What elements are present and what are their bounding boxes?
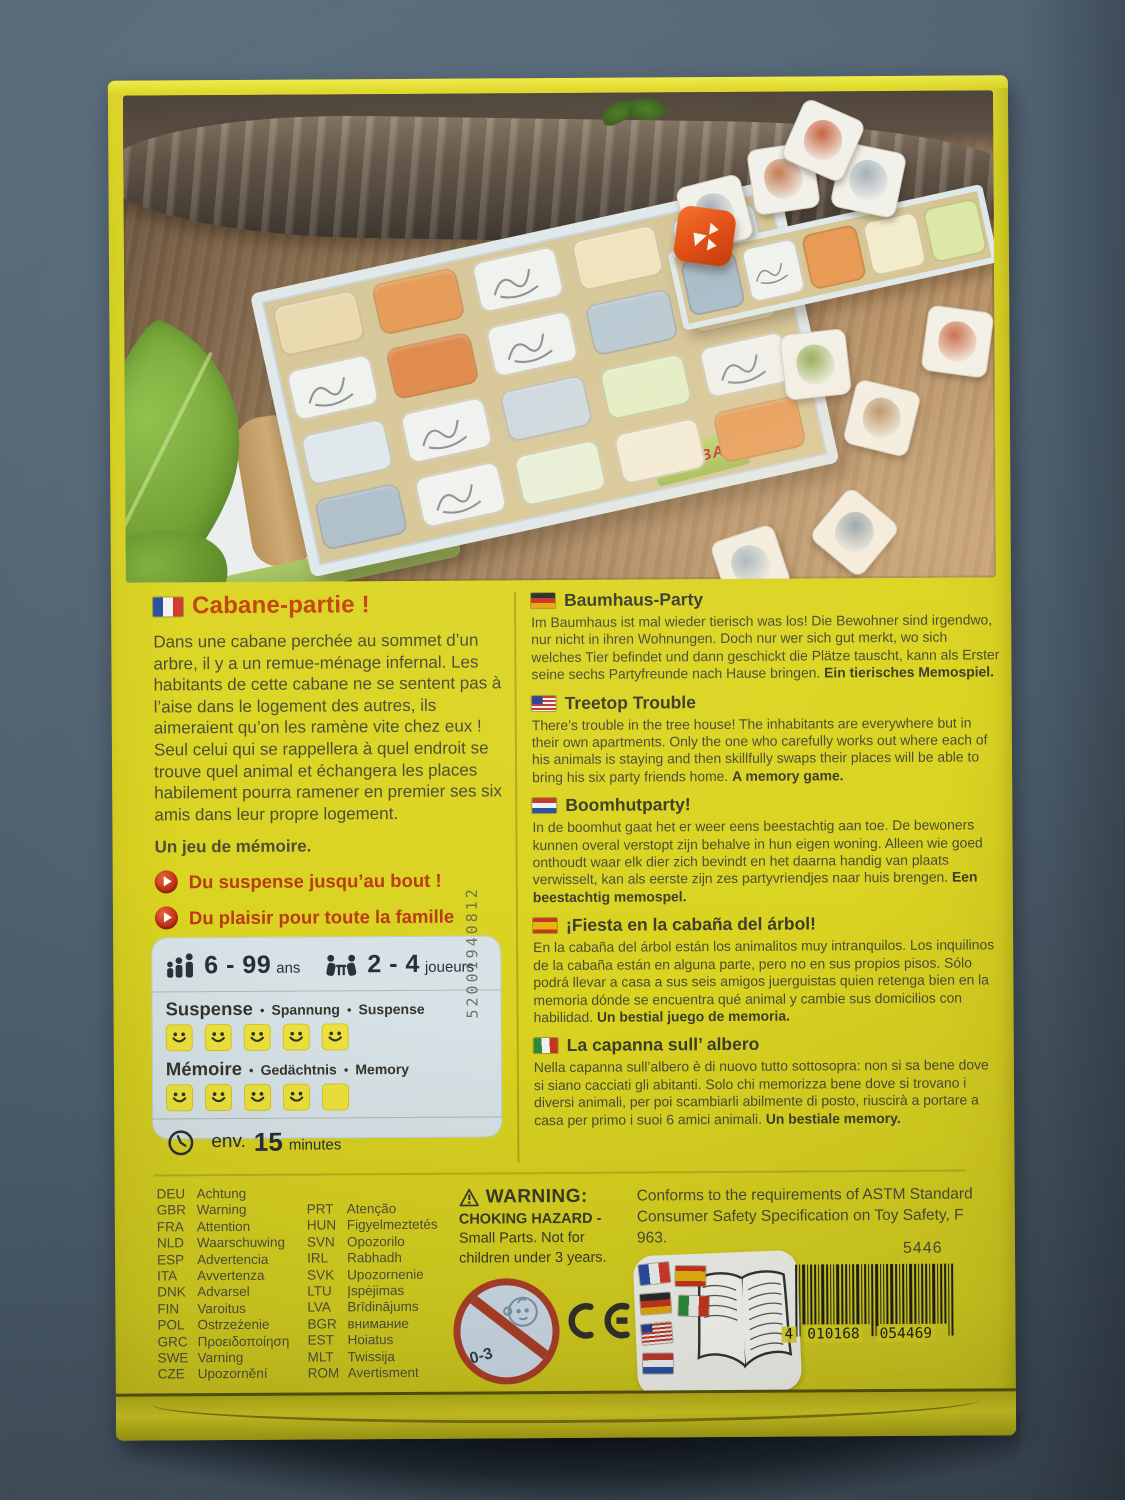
- bullet-row: Du plaisir pour toute la famille: [155, 905, 503, 930]
- section-body: En la cabaña del árbol están los animali…: [533, 937, 1002, 1027]
- section-de: Baumhaus-PartyIm Baumhaus ist mal wieder…: [531, 587, 1000, 683]
- barcode-bar: [948, 1264, 949, 1336]
- warning-word: Attention: [197, 1219, 250, 1234]
- section-body-text: Nella capanna sull’albero è di nuovo tut…: [534, 1057, 989, 1128]
- multilingual-booklet-sticker: [633, 1250, 803, 1397]
- rating-label: Suspense•Spannung•Suspense: [165, 996, 487, 1020]
- age-0-3-prohibition-icon: 0-3: [449, 1274, 564, 1389]
- rating-label-2: Memory: [355, 1061, 409, 1077]
- duration-value: 15: [254, 1126, 283, 1157]
- warning-word: внимание: [347, 1316, 409, 1331]
- warning-word: Varning: [198, 1350, 244, 1365]
- choking-hazard-line: CHOKING HAZARD -: [459, 1211, 639, 1228]
- barcode-bar: [799, 1265, 800, 1337]
- france-flag-icon: [153, 597, 183, 616]
- nl-flag-icon: [532, 798, 556, 813]
- legal-area-divider: [155, 1170, 967, 1176]
- usa-flag-icon: [641, 1322, 673, 1345]
- section-title-row: ¡Fiesta en la cabaña del árbol!: [533, 913, 1001, 937]
- barcode-bar: [833, 1264, 834, 1324]
- barcode-bar: [849, 1264, 850, 1324]
- warning-word: Figyelmeztetés: [347, 1217, 438, 1233]
- section-body: Nella capanna sull’albero è di nuovo tut…: [534, 1057, 1002, 1129]
- barcode-bar: [861, 1264, 862, 1324]
- rating-label-2: Suspense: [358, 1001, 424, 1017]
- language-code: LVA: [307, 1300, 347, 1317]
- barcode-bar: [871, 1264, 873, 1336]
- barcode-bar: [821, 1264, 824, 1324]
- animal-illustration: [798, 114, 849, 166]
- smiley-icon: [166, 1084, 193, 1111]
- section-body: Im Baumhaus ist mal wieder tierisch was …: [531, 611, 999, 683]
- board-tile: [313, 482, 408, 551]
- warning-language-row: NLDWaarschuwing: [157, 1235, 289, 1252]
- barcode-bar: [814, 1264, 816, 1324]
- choking-hazard-warning: WARNING: CHOKING HAZARD - Small Parts. N…: [459, 1186, 639, 1268]
- barcode-bar: [886, 1264, 888, 1324]
- section-body: In de boomhut gaat het er weer eens bees…: [532, 817, 1001, 907]
- board-tile: [299, 418, 394, 487]
- language-code: SVN: [307, 1234, 347, 1251]
- language-code: NLD: [157, 1235, 197, 1252]
- warning-word: Upozornění: [198, 1366, 268, 1381]
- us-flag-icon: [532, 696, 556, 711]
- smiley-icon: [283, 1084, 310, 1111]
- it-flag-icon: [534, 1038, 558, 1053]
- language-code: MLT: [308, 1349, 348, 1366]
- barcode-bar: [807, 1265, 808, 1325]
- warning-word: Brīdinājums: [347, 1299, 418, 1314]
- warning-word: Προειδοποίηση: [198, 1333, 290, 1349]
- label-separator-dot: •: [260, 1003, 265, 1018]
- section-es: ¡Fiesta en la cabaña del árbol!En la cab…: [533, 913, 1002, 1027]
- warning-word: Įspėjimas: [347, 1283, 404, 1298]
- barcode-bar: [826, 1264, 828, 1324]
- french-body: Dans une cabane perchée au sommet d’un a…: [153, 629, 502, 825]
- strip-tile: [922, 197, 989, 264]
- warning-language-row: LVABrīdinājums: [307, 1299, 438, 1316]
- duration-row: env. 15 minutes: [152, 1116, 502, 1165]
- barcode-bar: [951, 1264, 953, 1336]
- french-memory-note: Un jeu de mémoire.: [154, 836, 502, 858]
- barcode-bar: [914, 1264, 916, 1324]
- language-code: ROM: [308, 1365, 348, 1382]
- language-code: GBR: [157, 1203, 197, 1220]
- barcode-bar: [836, 1264, 839, 1324]
- barcode-bar: [883, 1264, 884, 1324]
- warning-language-row: HUNFigyelmeztetés: [307, 1217, 438, 1234]
- french-title-row: Cabane-partie !: [153, 590, 501, 620]
- bullet-list: Du suspense jusqu’au bout !Du plaisir po…: [155, 869, 503, 930]
- barcode-bar: [902, 1264, 904, 1324]
- warning-word: Achtung: [197, 1186, 247, 1201]
- language-code: ITA: [157, 1268, 197, 1285]
- section-title: Boomhutparty!: [565, 794, 691, 816]
- section-title: ¡Fiesta en la cabaña del árbol!: [566, 914, 816, 937]
- game-box-back: HABA Cabane-partie ! Dans une cabane per…: [108, 75, 1016, 1440]
- warning-language-row: DEUAchtung: [157, 1186, 289, 1203]
- play-bullet-icon: [155, 907, 178, 930]
- section-title: Baumhaus-Party: [564, 589, 703, 611]
- section-title: La capanna sull’ albero: [567, 1034, 760, 1056]
- game-die: [672, 205, 737, 268]
- french-title: Cabane-partie !: [192, 591, 370, 620]
- barcode-bar: [856, 1264, 859, 1324]
- astm-statement: Conforms to the requirements of ASTM Sta…: [637, 1183, 997, 1248]
- warning-language-row: IRLRabhadh: [307, 1250, 438, 1267]
- warning-word: Atenção: [347, 1201, 397, 1216]
- barcode-bar: [841, 1264, 843, 1324]
- warning-language-row: ESPAdvertencia: [157, 1251, 289, 1268]
- duration-prefix: env.: [211, 1131, 246, 1153]
- section-title: Treetop Trouble: [565, 692, 696, 714]
- small-parts-line: Small Parts. Not for: [459, 1229, 639, 1248]
- warning-language-row: PRTAtenção: [307, 1201, 438, 1218]
- players-range: 2 - 4: [367, 949, 420, 978]
- warning-word: Twissija: [348, 1349, 395, 1364]
- french-column: Cabane-partie ! Dans une cabane perchée …: [153, 590, 503, 942]
- warning-language-row: ITAAvvertenza: [157, 1268, 289, 1285]
- es-flag-icon: [533, 918, 557, 933]
- warning-language-row: GBRWarning: [157, 1202, 289, 1219]
- warning-language-row: DNKAdvarsel: [157, 1284, 289, 1301]
- smiley-icon: [166, 1024, 193, 1051]
- age-range: 6 - 99: [204, 950, 271, 979]
- rating-tiles: [166, 1082, 488, 1111]
- background-shade: [1025, 0, 1125, 1500]
- section-us: Treetop TroubleThere’s trouble in the tr…: [532, 690, 1001, 786]
- age-0-3-label: 0-3: [468, 1345, 495, 1368]
- spain-flag-icon: [675, 1266, 705, 1286]
- barcode-bar: [918, 1264, 919, 1324]
- players-icon: [322, 951, 360, 977]
- warning-word: Hoiatus: [348, 1332, 394, 1347]
- smiley-icon: [322, 1023, 349, 1050]
- barcode-bar: [944, 1264, 946, 1324]
- warning-language-row: FINVaroitus: [157, 1301, 289, 1318]
- clock-icon: [166, 1128, 195, 1157]
- warning-language-row: FRAAttention: [157, 1218, 289, 1235]
- barcode-bar: [921, 1264, 923, 1324]
- language-sections: Baumhaus-PartyIm Baumhaus ist mal wieder…: [531, 587, 1002, 1138]
- barcode-bar: [818, 1264, 819, 1324]
- warning-word: Advertencia: [197, 1251, 268, 1266]
- barcode-digits-mid: 010168: [804, 1326, 862, 1342]
- age-players-row: 6 - 99 ans 2 - 4 joueurs: [151, 935, 501, 992]
- photo-of-game-box: HABA Cabane-partie ! Dans une cabane per…: [0, 0, 1125, 1500]
- barcode-bar: [880, 1264, 881, 1324]
- ratings: Suspense•Spannung•SuspenseMémoire•Gedäch…: [151, 990, 502, 1111]
- smiley-icon: [244, 1084, 271, 1111]
- barcode-bar: [929, 1264, 930, 1324]
- smiley-icon: [283, 1024, 310, 1051]
- warning-word: Warning: [197, 1202, 247, 1217]
- barcode-bar: [802, 1265, 805, 1325]
- warning-word: Avertisment: [348, 1365, 419, 1380]
- warning-language-list-col1: DEUAchtungGBRWarningFRAAttentionNLDWaars…: [157, 1186, 290, 1384]
- bullet-text: Du plaisir pour toute la famille: [189, 906, 454, 930]
- barcode-bar: [895, 1264, 897, 1324]
- section-body-bold: Un bestial juego de memoria.: [597, 1008, 790, 1025]
- language-code: ESP: [157, 1252, 197, 1269]
- warning-language-row: GRCΠροειδοποίηση: [158, 1333, 290, 1350]
- warning-word: Ostrzeżenie: [197, 1317, 269, 1332]
- language-code: POL: [157, 1317, 197, 1334]
- warning-language-row: POLOstrzeżenie: [157, 1317, 289, 1334]
- warning-language-row: SVNOpozorilo: [307, 1234, 438, 1251]
- label-separator-dot: •: [347, 1002, 352, 1017]
- barcode-bar: [940, 1264, 942, 1324]
- language-code: HUN: [307, 1218, 347, 1235]
- warning-heading-row: WARNING:: [459, 1186, 639, 1209]
- language-code: CZE: [158, 1367, 198, 1384]
- barcode-bar: [845, 1264, 847, 1324]
- bullet-text: Du suspense jusqu’au bout !: [189, 870, 442, 894]
- barcode-bar: [852, 1264, 854, 1324]
- box-photo: HABA: [123, 90, 996, 582]
- barcode-bar: [864, 1264, 866, 1324]
- barcode-bar: [899, 1264, 900, 1324]
- section-body: There’s trouble in the tree house! The i…: [532, 714, 1000, 786]
- section-title-row: Treetop Trouble: [532, 690, 1000, 714]
- barcode-digits-right: 054469: [877, 1326, 935, 1342]
- section-body-text: In de boomhut gaat het er weer eens bees…: [532, 817, 982, 888]
- language-code: SWE: [158, 1350, 198, 1367]
- germany-flag-icon: [640, 1292, 671, 1314]
- warning-language-row: LTUĮspėjimas: [307, 1283, 438, 1300]
- warning-language-row: ESTHoiatus: [308, 1332, 439, 1349]
- label-separator-dot: •: [344, 1062, 349, 1077]
- section-it: La capanna sull’ alberoNella capanna sul…: [534, 1033, 1003, 1129]
- warning-triangle-icon: [459, 1188, 480, 1208]
- barcode-bar: [909, 1264, 912, 1324]
- language-code: LTU: [307, 1283, 347, 1300]
- rating-row: Suspense•Spannung•Suspense: [165, 996, 487, 1051]
- warning-word: Waarschuwing: [197, 1235, 285, 1251]
- print-code-stamp: 52001940812: [462, 787, 481, 1019]
- animal-illustration: [846, 157, 891, 204]
- warning-language-row: ROMAvertisment: [308, 1365, 439, 1382]
- section-title-row: Baumhaus-Party: [531, 587, 999, 611]
- rating-label-1: Spannung: [271, 1001, 340, 1017]
- warning-word: Varoitus: [197, 1301, 246, 1316]
- warning-word: Upozornenie: [347, 1266, 424, 1281]
- age-people-icon: [165, 952, 197, 978]
- age-unit: ans: [276, 959, 300, 976]
- rating-label: Mémoire•Gedächtnis•Memory: [166, 1056, 488, 1080]
- section-body-bold: Ein tierisches Memospiel.: [824, 664, 994, 681]
- warning-language-row: SWEVarning: [158, 1350, 290, 1367]
- barcode-bar: [932, 1264, 935, 1324]
- warning-word: Rabhadh: [347, 1250, 402, 1265]
- barcode: 4 010168 054469: [781, 1263, 1005, 1342]
- language-code: EST: [308, 1333, 348, 1350]
- france-flag-icon: [638, 1262, 670, 1285]
- ce-mark: [559, 1300, 633, 1347]
- players-group: 2 - 4 joueurs: [322, 949, 474, 979]
- barcode-bar: [830, 1264, 831, 1324]
- warning-language-list-col2: PRTAtençãoHUNFigyelmeztetésSVNOpozoriloI…: [307, 1201, 439, 1382]
- barcode-digits: 4 010168 054469: [781, 1325, 1005, 1342]
- section-body-bold: A memory game.: [732, 767, 844, 784]
- barcode-bar: [868, 1264, 869, 1324]
- rating-label-0: Suspense: [165, 998, 253, 1021]
- empty-rating-tile: [322, 1083, 349, 1110]
- language-code: DEU: [157, 1186, 197, 1203]
- netherlands-flag-icon: [643, 1353, 673, 1373]
- age-group: 6 - 99 ans: [165, 950, 300, 980]
- board-tile: [271, 289, 366, 358]
- barcode-bar: [890, 1264, 893, 1324]
- under-3-line: children under 3 years.: [459, 1249, 639, 1268]
- smiley-icon: [205, 1024, 232, 1051]
- rating-label-1: Gedächtnis: [260, 1061, 336, 1077]
- language-code: SVK: [307, 1267, 347, 1284]
- language-code: PRT: [307, 1201, 347, 1218]
- smiley-icon: [244, 1024, 271, 1051]
- light-glow: [428, 261, 995, 581]
- rating-label-0: Mémoire: [166, 1058, 242, 1080]
- leaf-sprig: [601, 96, 671, 138]
- smiley-icon: [205, 1084, 232, 1111]
- barcode-bar: [937, 1264, 938, 1324]
- italy-flag-icon: [678, 1296, 709, 1317]
- play-bullet-icon: [155, 871, 178, 894]
- language-code: FRA: [157, 1219, 197, 1236]
- game-info-box: 6 - 99 ans 2 - 4 joueurs Suspense•Spannu…: [151, 935, 502, 1139]
- language-code: DNK: [157, 1285, 197, 1302]
- duration-unit: minutes: [289, 1136, 342, 1153]
- section-title-row: Boomhutparty!: [532, 793, 1000, 817]
- label-separator-dot: •: [249, 1063, 254, 1078]
- board-tile: [285, 353, 380, 422]
- rating-row: Mémoire•Gedächtnis•Memory: [166, 1056, 488, 1111]
- warning-language-row: BGRвнимание: [307, 1316, 438, 1333]
- bullet-row: Du suspense jusqu’au bout !: [155, 869, 503, 894]
- barcode-digit-left: 4: [781, 1327, 796, 1343]
- barcode-bar: [925, 1264, 927, 1324]
- warning-language-row: SVKUpozornenie: [307, 1266, 438, 1283]
- warning-word: Advarsel: [197, 1284, 250, 1299]
- de-flag-icon: [531, 593, 555, 608]
- language-code: FIN: [157, 1301, 197, 1318]
- language-code: BGR: [307, 1316, 347, 1333]
- language-code: IRL: [307, 1251, 347, 1268]
- product-number: 5446: [903, 1240, 943, 1258]
- warning-language-row: CZEUpozornění: [158, 1366, 290, 1383]
- warning-word: Avvertenza: [197, 1268, 264, 1283]
- barcode-bar: [906, 1264, 907, 1324]
- language-code: GRC: [158, 1334, 198, 1351]
- section-title-row: La capanna sull’ albero: [534, 1033, 1002, 1057]
- rating-tiles: [166, 1022, 488, 1051]
- column-divider: [514, 592, 519, 1162]
- warning-word: Opozorilo: [347, 1234, 405, 1249]
- box-lid-edge: [116, 1388, 1016, 1440]
- barcode-bar: [810, 1264, 812, 1324]
- warning-language-row: MLTTwissija: [308, 1348, 439, 1365]
- section-body-bold: Un bestiale memory.: [766, 1109, 901, 1126]
- warning-heading: WARNING:: [486, 1186, 588, 1209]
- section-nl: Boomhutparty!In de boomhut gaat het er w…: [532, 793, 1001, 907]
